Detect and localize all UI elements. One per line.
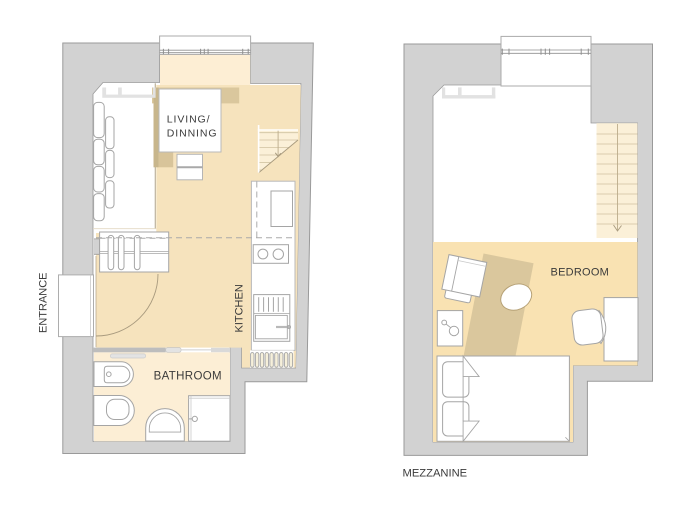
svg-text:KITCHEN: KITCHEN [234, 284, 246, 332]
svg-text:MEZZANINE: MEZZANINE [403, 468, 468, 480]
svg-text:ENTRANCE: ENTRANCE [38, 272, 50, 333]
svg-text:DINNING: DINNING [167, 128, 218, 140]
svg-text:BATHROOM: BATHROOM [154, 371, 222, 383]
svg-text:LIVING/: LIVING/ [167, 114, 211, 126]
svg-text:BEDROOM: BEDROOM [551, 267, 610, 279]
